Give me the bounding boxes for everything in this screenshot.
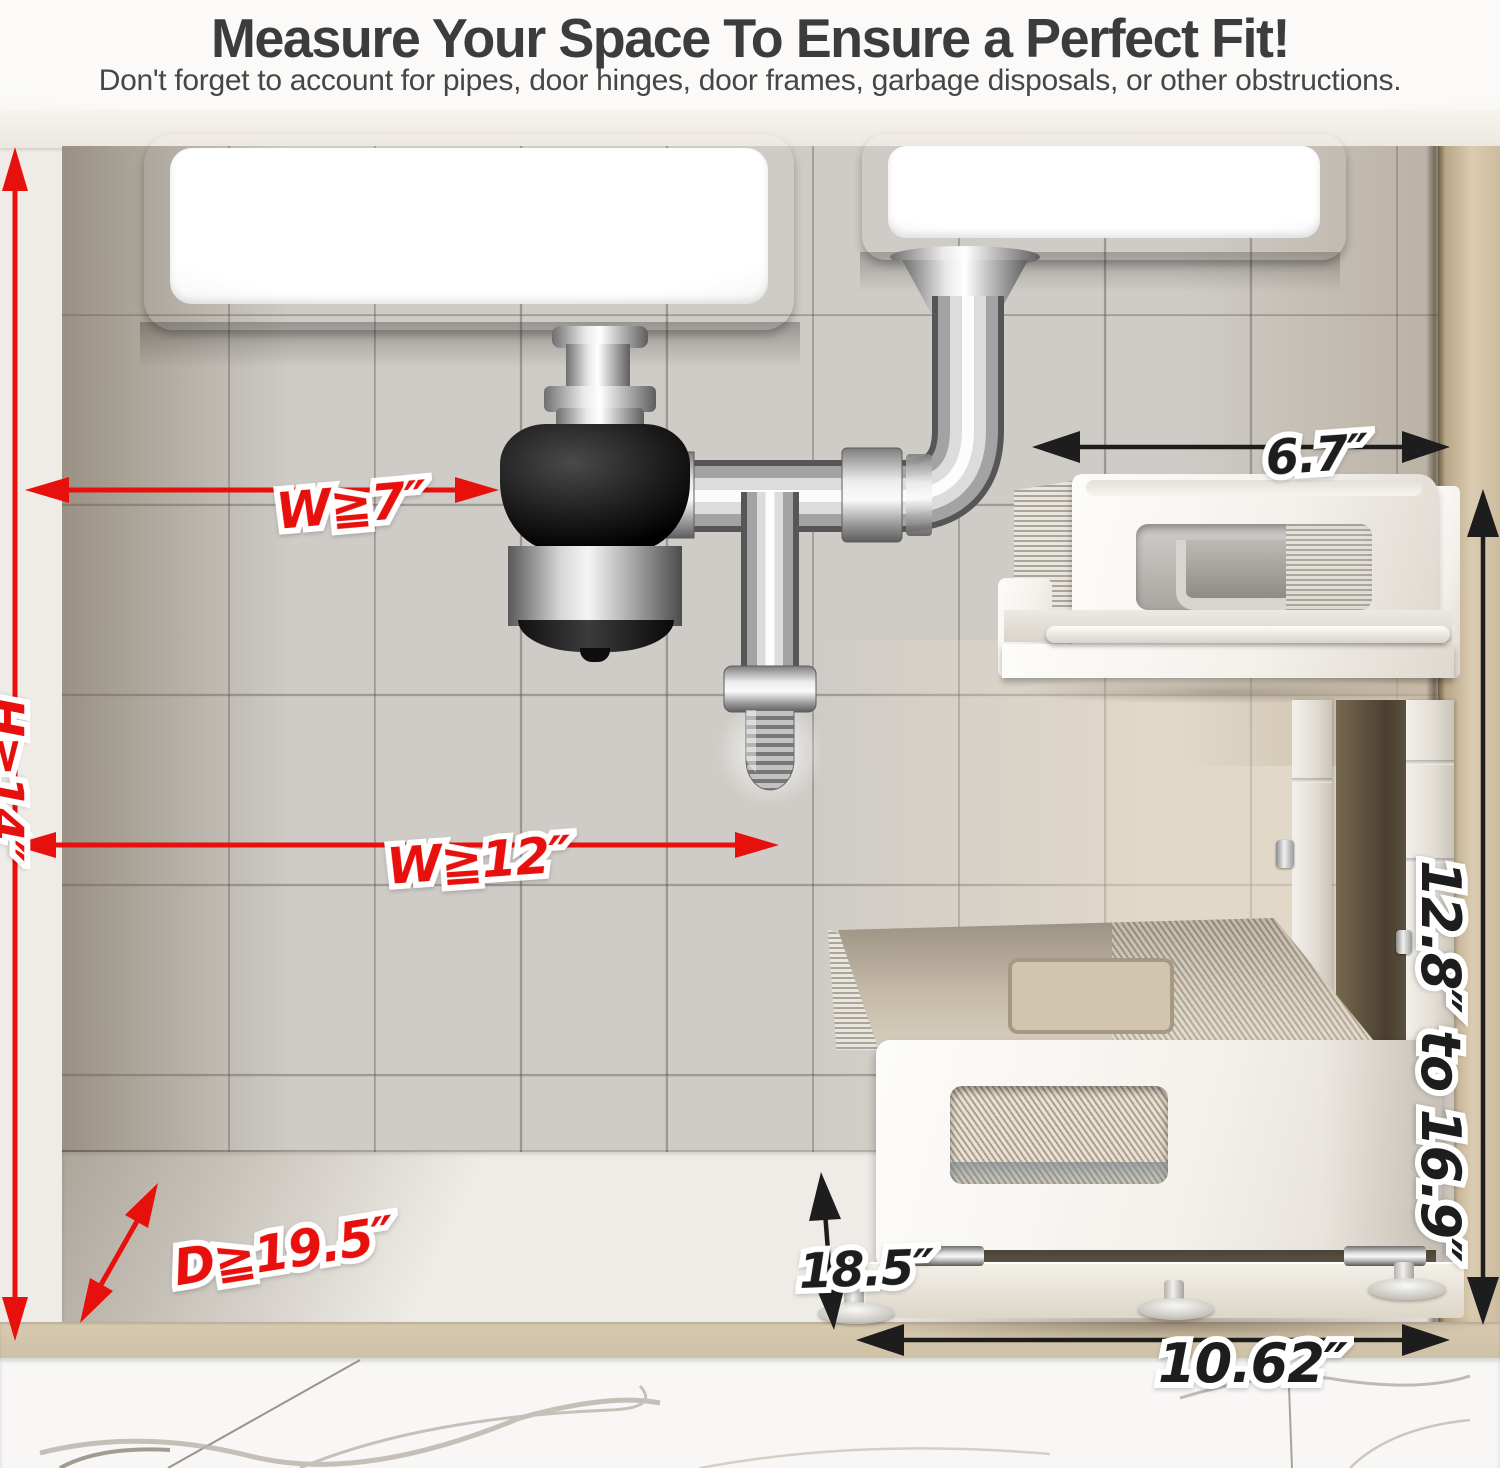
- top-basket-rim: [1086, 480, 1422, 496]
- bottom-drawer-front: [876, 1040, 1442, 1270]
- top-basket-window: [1136, 524, 1372, 610]
- top-basket-window-mesh: [1286, 524, 1372, 610]
- garbage-disposal-band: [508, 546, 682, 626]
- left-sink-shadow: [140, 322, 800, 368]
- header-banner: Measure Your Space To Ensure a Perfect F…: [0, 0, 1500, 110]
- bottom-drawer-window: [950, 1086, 1168, 1184]
- leveling-foot: [1138, 1298, 1214, 1320]
- leveling-foot: [818, 1302, 894, 1324]
- bottom-drawer-window-edge: [950, 1162, 1168, 1184]
- drawer-back-cutout: [1008, 958, 1174, 1034]
- top-basket-window-divider: [1176, 540, 1286, 610]
- measurement-infographic: Measure Your Space To Ensure a Perfect F…: [0, 0, 1500, 1468]
- garbage-disposal-body: [500, 424, 690, 552]
- shelf-front-panel: [1002, 644, 1454, 678]
- height-adjust-screw-left: [1276, 840, 1294, 868]
- shelf-pull-rail: [1046, 626, 1450, 643]
- left-sink-bottom-panel: [170, 148, 768, 304]
- left-drain-stub: [566, 344, 630, 392]
- leveling-foot: [1368, 1278, 1446, 1300]
- cabinet-floor-shadow: [62, 1150, 762, 1322]
- page-title: Measure Your Space To Ensure a Perfect F…: [15, 6, 1485, 70]
- page-subtitle: Don't forget to account for pipes, door …: [0, 64, 1500, 98]
- right-sink-bottom-panel: [888, 146, 1320, 238]
